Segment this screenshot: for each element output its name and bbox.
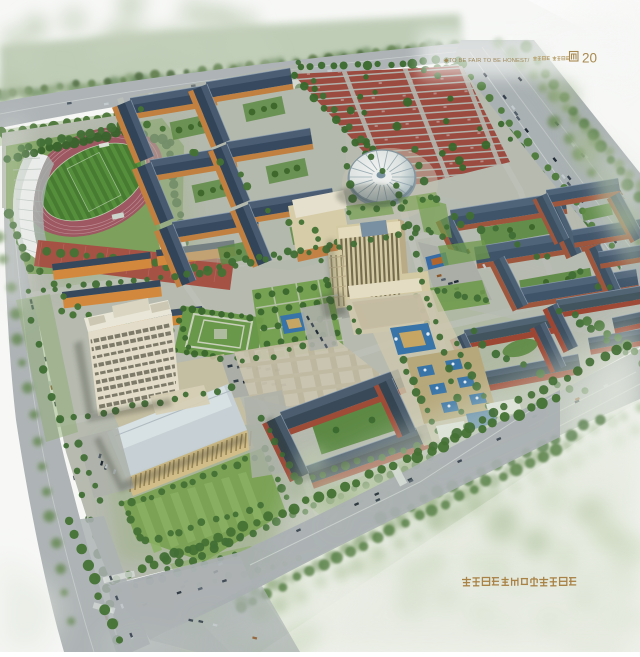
svg-text:◆TO BE FAIR TO BE HONEST/: ◆TO BE FAIR TO BE HONEST/ — [444, 58, 530, 64]
svg-text:20: 20 — [582, 51, 597, 66]
